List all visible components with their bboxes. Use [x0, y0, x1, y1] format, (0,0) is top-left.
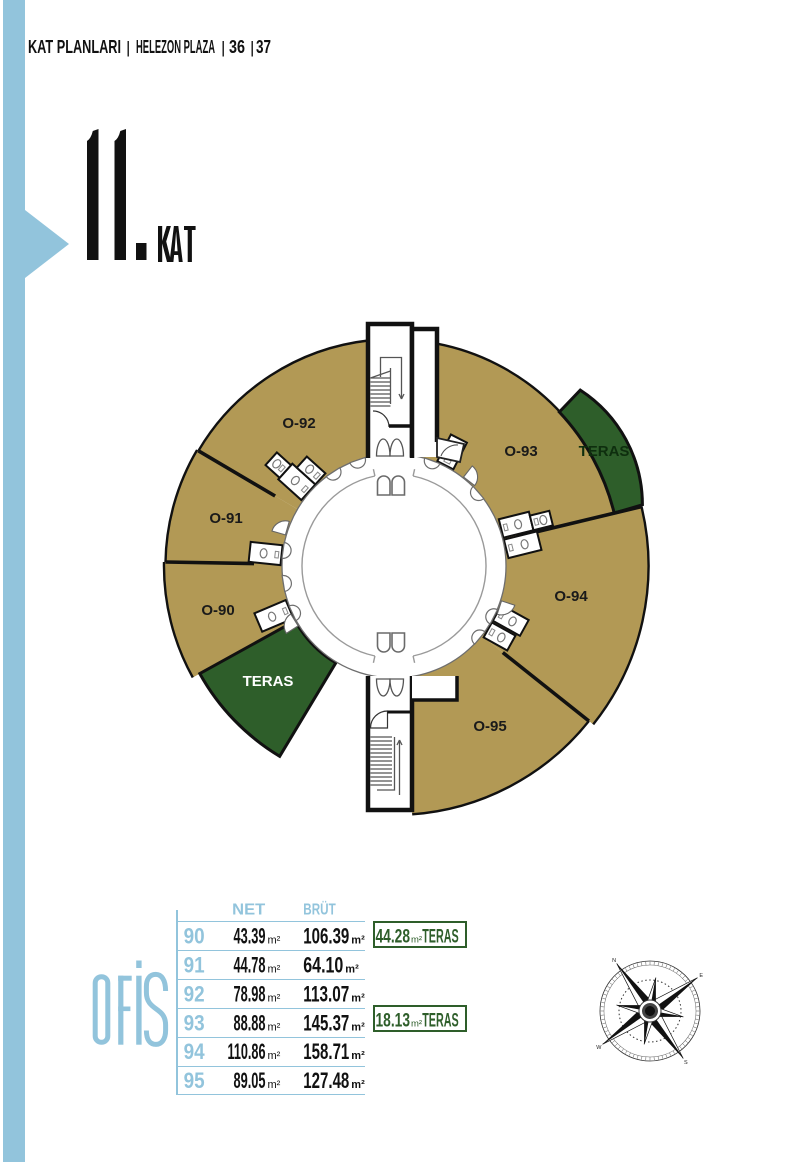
svg-text:TERAS: TERAS: [422, 927, 459, 948]
svg-text:m²: m²: [268, 1050, 281, 1062]
svg-text:O-94: O-94: [554, 588, 588, 605]
svg-text:m²: m²: [411, 935, 422, 946]
svg-text:N: N: [612, 958, 616, 964]
svg-text:18.13: 18.13: [376, 1009, 411, 1031]
svg-text:94: 94: [184, 1039, 205, 1064]
svg-text:m²: m²: [351, 1050, 365, 1062]
svg-text:44.78: 44.78: [234, 953, 266, 978]
svg-text:m²: m²: [351, 1079, 365, 1091]
svg-text:127.48: 127.48: [303, 1068, 349, 1093]
svg-text:145.37: 145.37: [303, 1011, 349, 1036]
svg-text:m²: m²: [268, 1022, 281, 1034]
svg-text:m²: m²: [411, 1018, 422, 1029]
svg-text:91: 91: [184, 953, 205, 978]
svg-text:106.39: 106.39: [303, 924, 349, 949]
svg-text:m²: m²: [268, 935, 281, 947]
svg-text:m²: m²: [351, 935, 365, 947]
svg-text:78.98: 78.98: [234, 982, 266, 1007]
svg-text:64.10: 64.10: [303, 953, 343, 978]
svg-text:TERAS: TERAS: [243, 673, 294, 690]
svg-text:TERAS: TERAS: [579, 443, 630, 460]
svg-text:NET: NET: [232, 901, 265, 918]
svg-text:O-93: O-93: [504, 443, 537, 460]
svg-text:88.88: 88.88: [234, 1011, 266, 1036]
svg-text:95: 95: [184, 1068, 205, 1093]
svg-text:m²: m²: [268, 964, 281, 976]
svg-text:O-95: O-95: [473, 718, 506, 735]
svg-text:90: 90: [184, 924, 205, 949]
svg-text:110.86: 110.86: [228, 1039, 266, 1064]
svg-text:m²: m²: [268, 1079, 281, 1091]
svg-text:BRÜT: BRÜT: [303, 899, 336, 918]
svg-text:m²: m²: [351, 993, 365, 1005]
svg-text:S: S: [684, 1060, 688, 1066]
svg-text:113.07: 113.07: [303, 982, 349, 1007]
svg-text:m²: m²: [345, 964, 359, 976]
svg-text:O-92: O-92: [282, 415, 315, 432]
svg-text:O-90: O-90: [201, 602, 234, 619]
svg-text:93: 93: [184, 1011, 205, 1036]
svg-text:TERAS: TERAS: [422, 1010, 459, 1031]
svg-text:W: W: [596, 1045, 602, 1051]
svg-text:43.39: 43.39: [234, 924, 266, 949]
svg-text:44.28: 44.28: [376, 926, 411, 948]
svg-text:m²: m²: [351, 1022, 365, 1034]
svg-text:89.05: 89.05: [234, 1068, 266, 1093]
svg-text:m²: m²: [268, 993, 281, 1005]
svg-text:158.71: 158.71: [303, 1039, 349, 1064]
svg-text:O-91: O-91: [209, 510, 242, 527]
svg-text:E: E: [699, 973, 703, 979]
svg-text:92: 92: [184, 982, 205, 1007]
